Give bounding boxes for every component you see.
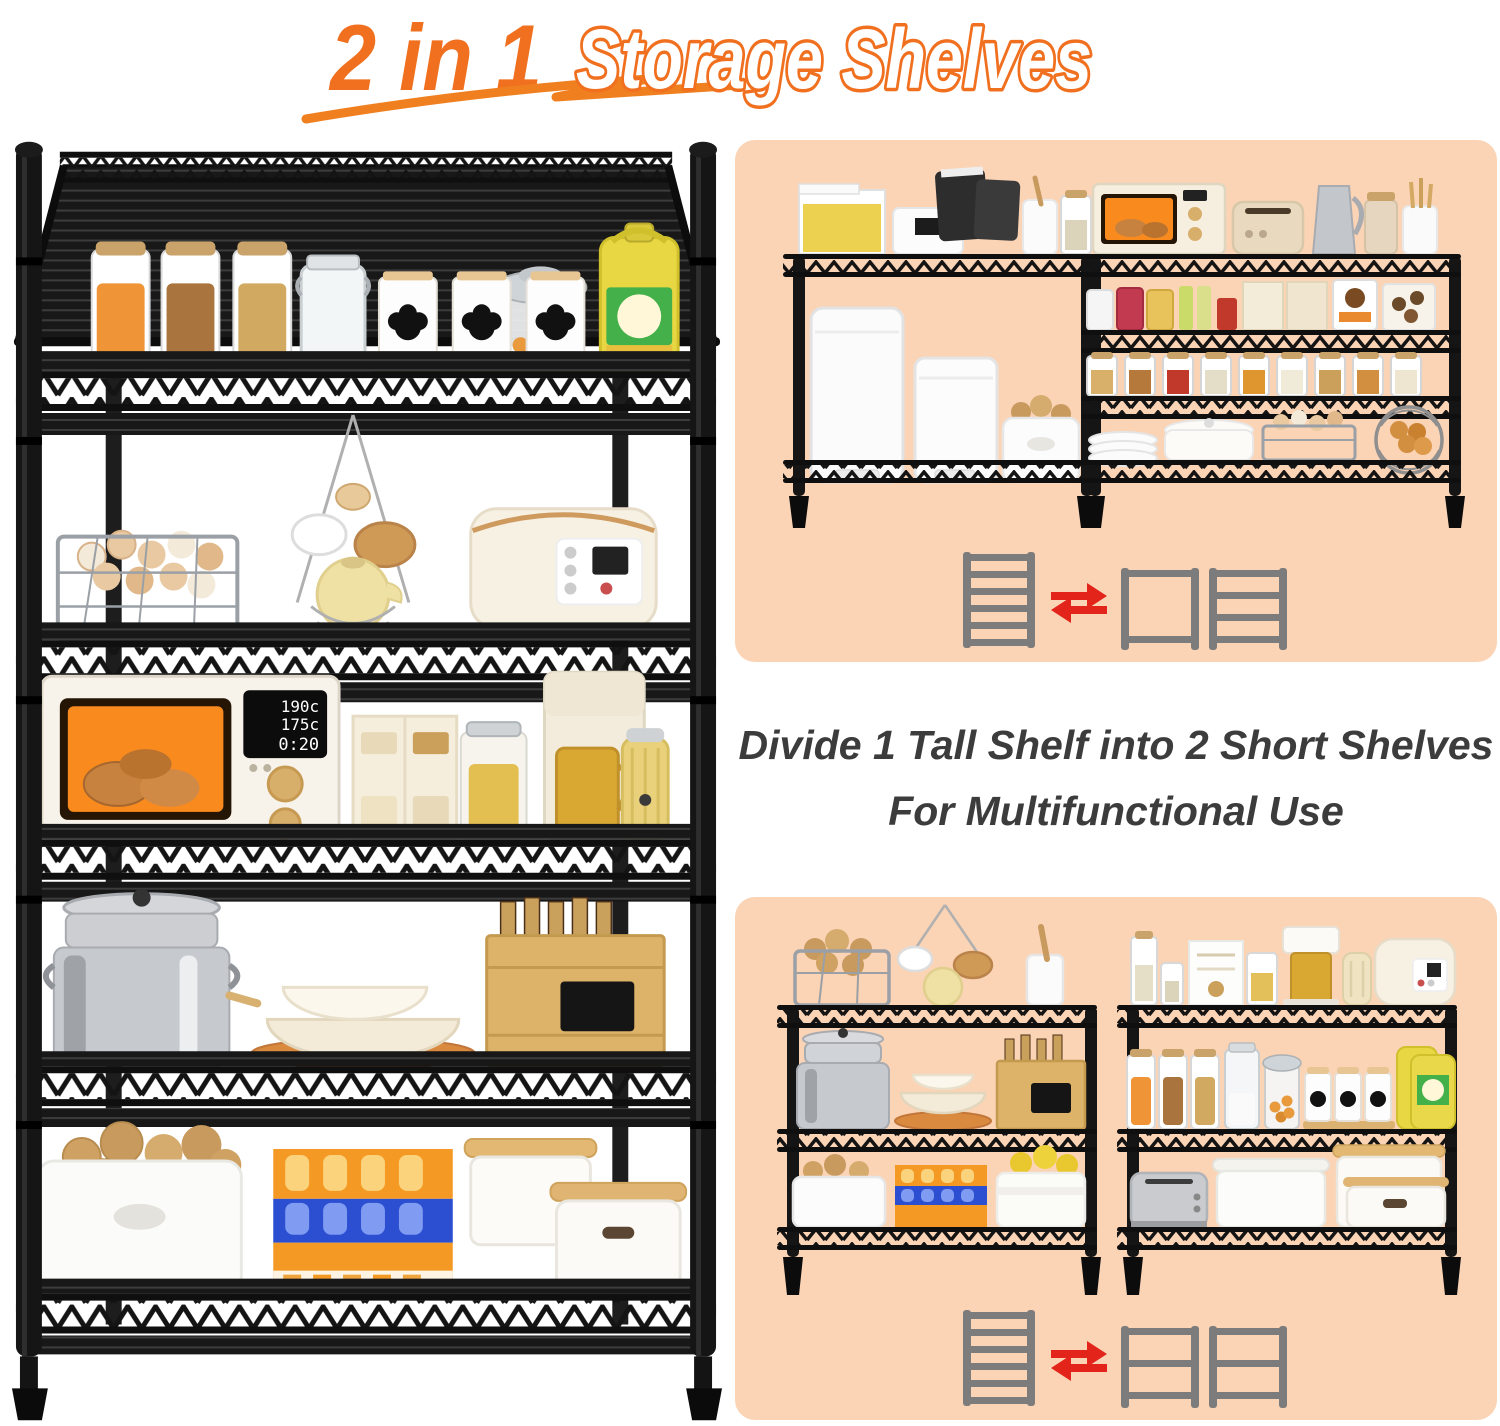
svg-text:175c: 175c (281, 715, 319, 734)
top-shelf-items (799, 167, 1091, 254)
transform-diagram-top (735, 544, 1497, 656)
wooden-crate (487, 898, 665, 1066)
panel-split-bottom (735, 897, 1497, 1420)
swap-arrows-icon (1051, 1341, 1107, 1381)
juice-packs (273, 1149, 453, 1294)
pedal-trash-cans (811, 308, 997, 482)
rice-cooker (471, 509, 656, 641)
product-image: 2 in 1 Storage Shelves (0, 0, 1500, 1426)
food-boxes (353, 716, 457, 840)
microwave-display: 190c 175c 0:20 (243, 690, 327, 758)
caption: Divide 1 Tall Shelf into 2 Short Shelves… (735, 712, 1497, 845)
two-short-shelves-photo-bottom (735, 897, 1497, 1307)
tall-shelf-icon (963, 1310, 1035, 1406)
short-shelf-3-tier-left (777, 905, 1101, 1295)
potato-bin (38, 1122, 241, 1293)
oil-bottle (600, 224, 678, 372)
shelf-band (16, 824, 716, 902)
short-shelf-3-tier-icon (1209, 1326, 1287, 1408)
tier2-items (1127, 1043, 1455, 1129)
storage-boxes (465, 1139, 686, 1294)
short-shelf-2-tier (783, 167, 1097, 528)
tier3-items (793, 1145, 1085, 1227)
front-post-right (686, 142, 722, 1420)
short-shelf-4-tier (1081, 178, 1465, 528)
svg-text:0:20: 0:20 (278, 734, 319, 754)
tier2-items (1087, 280, 1435, 330)
title-storage-shelves: Storage Shelves (576, 12, 1092, 106)
transform-diagram-bottom (735, 1302, 1497, 1414)
caption-line-1: Divide 1 Tall Shelf into 2 Short Shelves (735, 712, 1497, 778)
short-shelf-4-tier-icon (1209, 568, 1287, 650)
shelf-band (16, 351, 716, 435)
svg-text:190c: 190c (281, 697, 319, 716)
title-banner: 2 in 1 Storage Shelves (0, 0, 1500, 140)
top-shelf-items (1131, 927, 1455, 1006)
panel-split-top (735, 140, 1497, 662)
short-shelf-3-tier-icon (1121, 1326, 1199, 1408)
steamer-pot (46, 889, 237, 1066)
microwave-oven: 190c 175c 0:20 (42, 676, 339, 840)
tier2-items (797, 1028, 1085, 1130)
tier3-items (1087, 352, 1421, 396)
swap-arrows-icon (1051, 583, 1107, 623)
short-shelf-3-tier-right (1117, 927, 1461, 1295)
shelf-band (16, 1279, 716, 1355)
cracker-jar (461, 722, 527, 840)
milk-frother (622, 728, 668, 840)
short-shelf-2-tier-icon (1121, 568, 1199, 650)
shelf-band (16, 1051, 716, 1127)
top-shelf-items (795, 905, 1063, 1006)
tier3-items (1131, 1145, 1449, 1227)
caption-line-2: For Multifunctional Use (735, 778, 1497, 844)
tall-shelf-photo: 190c 175c 0:20 (2, 136, 730, 1426)
top-shelf-items (1093, 178, 1437, 254)
tall-shelf-icon (963, 552, 1035, 648)
two-short-shelves-photo-top (735, 140, 1497, 540)
